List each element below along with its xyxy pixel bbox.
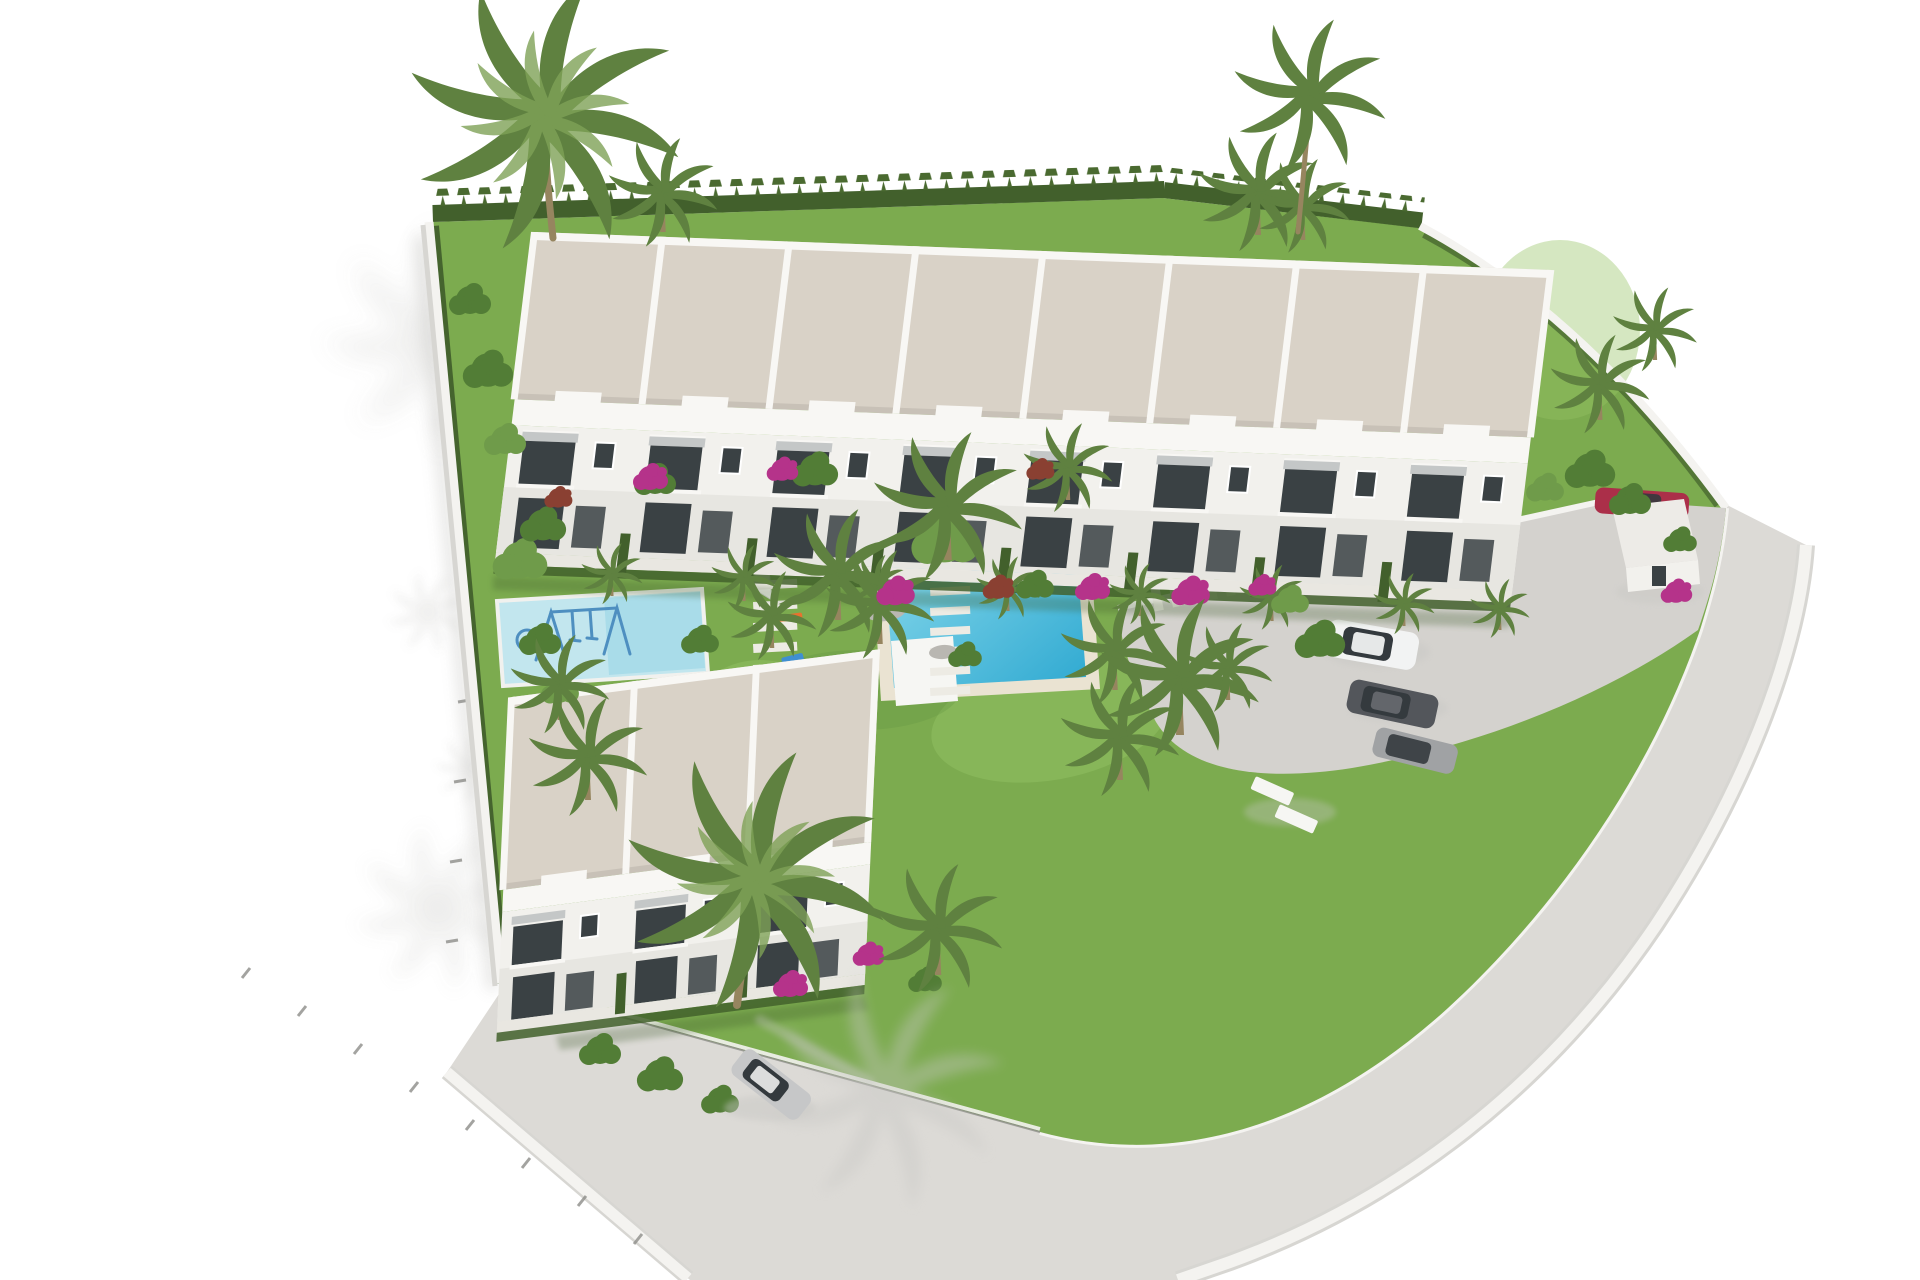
aerial-render [0,0,1920,1280]
upper-townhouse-row [489,231,1554,613]
gatehouse-door [1652,566,1666,586]
